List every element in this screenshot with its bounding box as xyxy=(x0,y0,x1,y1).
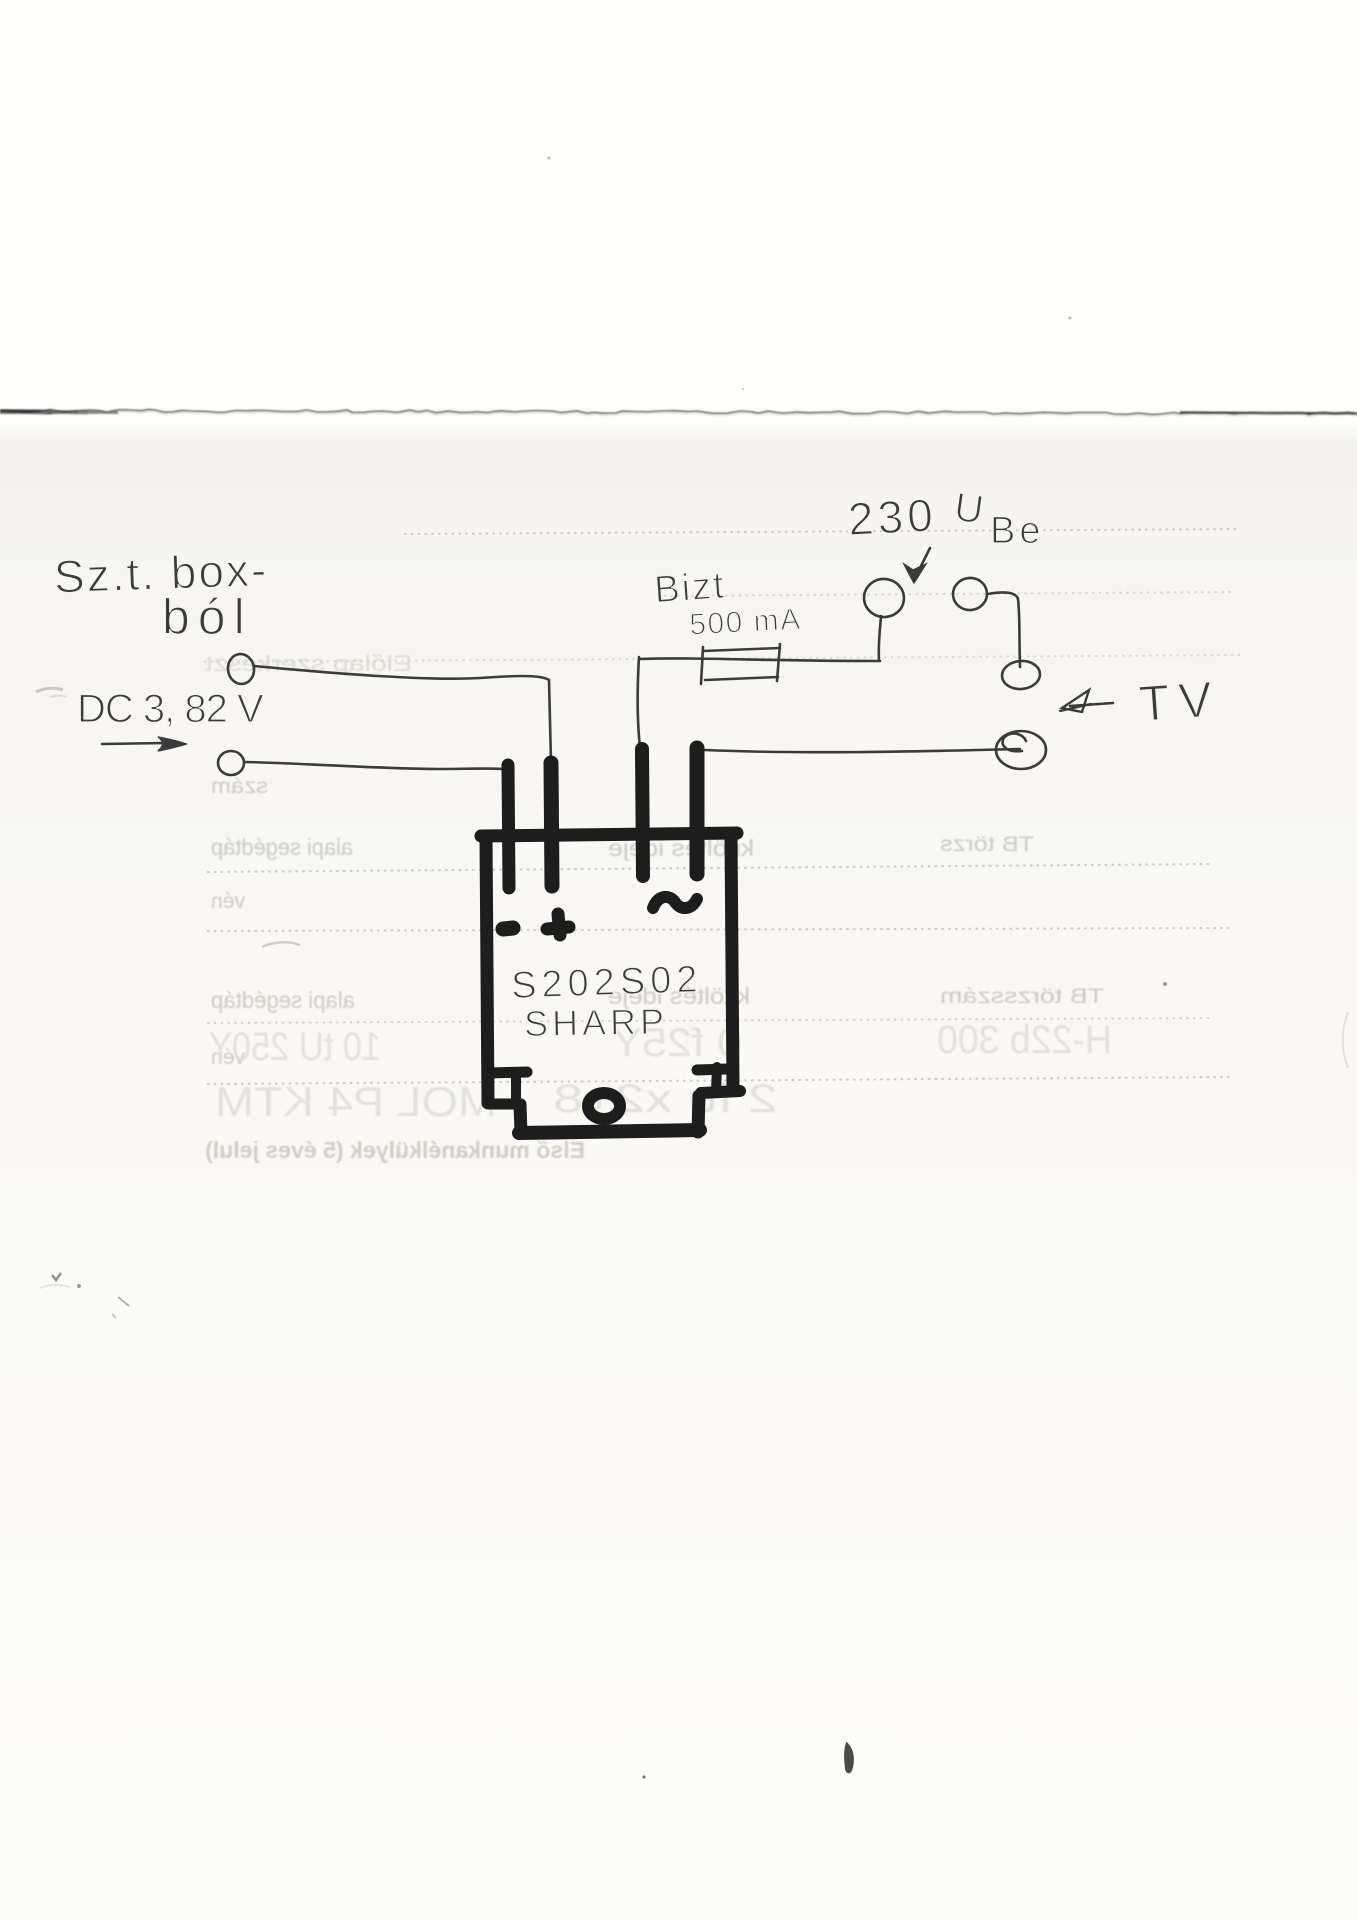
svg-text:MOL P4 KTM: MOL P4 KTM xyxy=(215,1078,497,1125)
svg-text:alapi segédtáp: alapi segédtáp xyxy=(211,987,355,1013)
svg-text:szám: szám xyxy=(211,775,268,798)
svg-text:SHARP: SHARP xyxy=(524,1001,669,1045)
svg-text:H-22b 300: H-22b 300 xyxy=(937,1018,1112,1062)
svg-text:10 tU 250Y: 10 tU 250Y xyxy=(209,1025,381,1069)
svg-text:TB törzsszám: TB törzsszám xyxy=(940,985,1104,1008)
svg-text:230: 230 xyxy=(847,489,938,546)
svg-text:alapi segédtáp: alapi segédtáp xyxy=(211,834,353,860)
svg-text:TV: TV xyxy=(1137,671,1223,733)
svg-text:DC 3, 82 V: DC 3, 82 V xyxy=(77,687,264,731)
svg-text:vén: vén xyxy=(211,890,245,913)
svg-text:U: U xyxy=(952,485,987,533)
svg-text:500 mA: 500 mA xyxy=(688,603,802,642)
svg-text:Bizt: Bizt xyxy=(653,565,727,612)
svg-text:ból: ból xyxy=(162,589,253,645)
svg-text:Be: Be xyxy=(990,510,1044,552)
svg-text:S202S02: S202S02 xyxy=(510,958,703,1007)
svg-text:TB törzs: TB törzs xyxy=(940,833,1034,856)
svg-text:Első munkanélkülyek (5 éves je: Első munkanélkülyek (5 éves jelul) xyxy=(205,1137,585,1163)
